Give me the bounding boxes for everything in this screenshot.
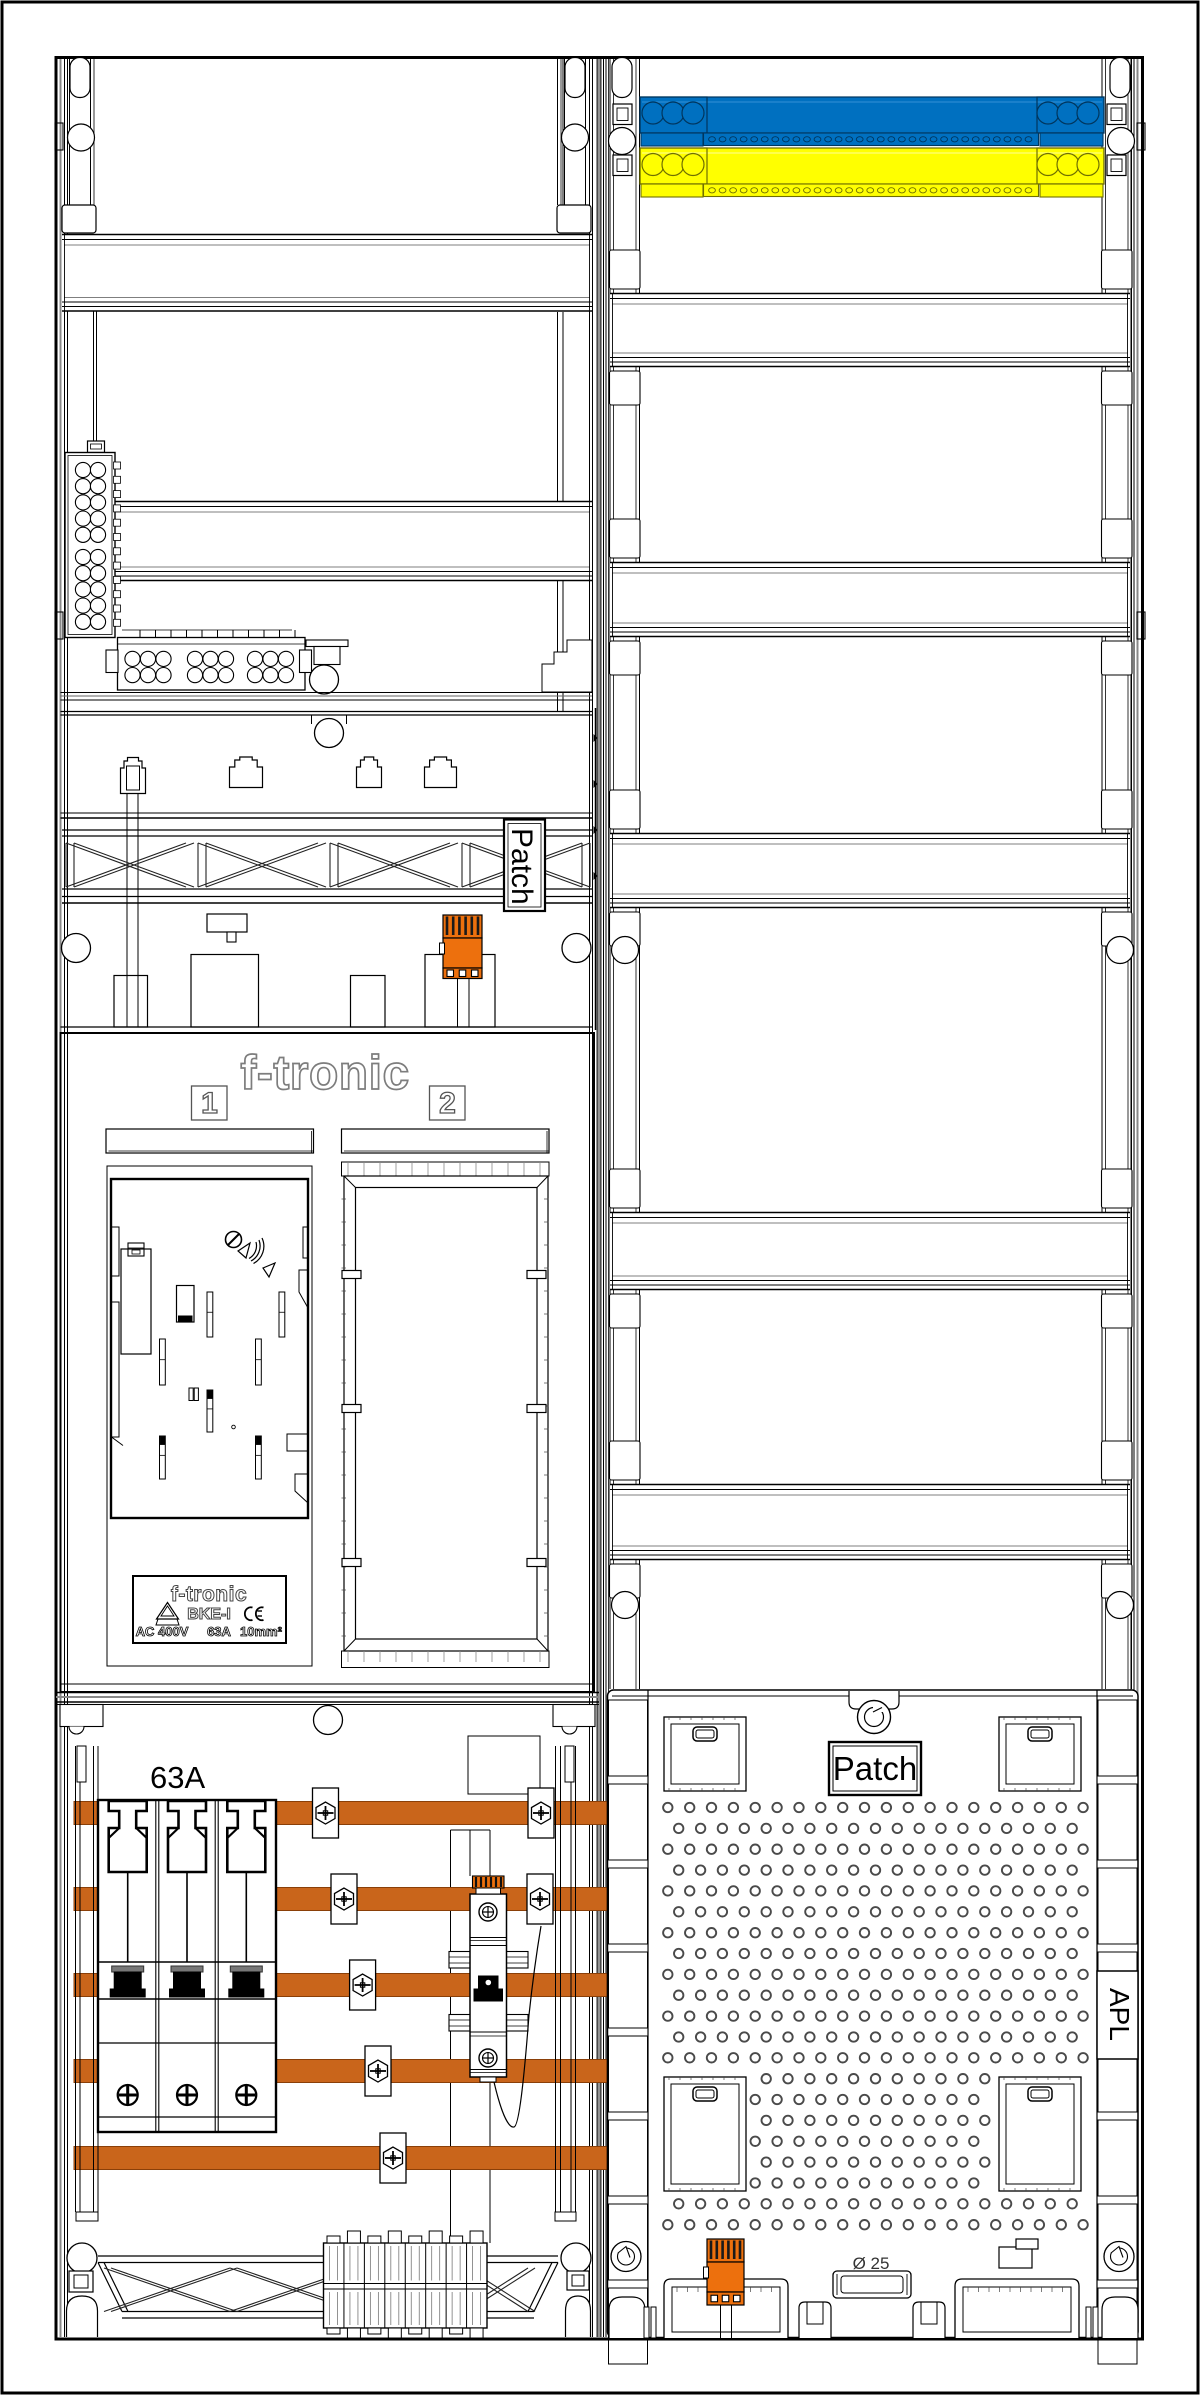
svg-text:63A: 63A	[207, 1624, 231, 1639]
svg-text:f-tronic: f-tronic	[240, 1047, 409, 1100]
svg-text:Patch: Patch	[833, 1750, 917, 1787]
svg-text:2: 2	[439, 1087, 456, 1120]
svg-text:Patch: Patch	[505, 828, 538, 905]
svg-text:Ø 25: Ø 25	[853, 2254, 890, 2273]
svg-text:10mm²: 10mm²	[240, 1624, 283, 1639]
svg-text:63A: 63A	[150, 1760, 205, 1795]
svg-text:APL: APL	[1104, 1988, 1135, 2041]
svg-text:1: 1	[201, 1087, 218, 1120]
svg-text:BKE-I: BKE-I	[187, 1606, 231, 1623]
svg-text:f-tronic: f-tronic	[171, 1583, 247, 1606]
svg-text:AC 400V: AC 400V	[136, 1624, 189, 1639]
